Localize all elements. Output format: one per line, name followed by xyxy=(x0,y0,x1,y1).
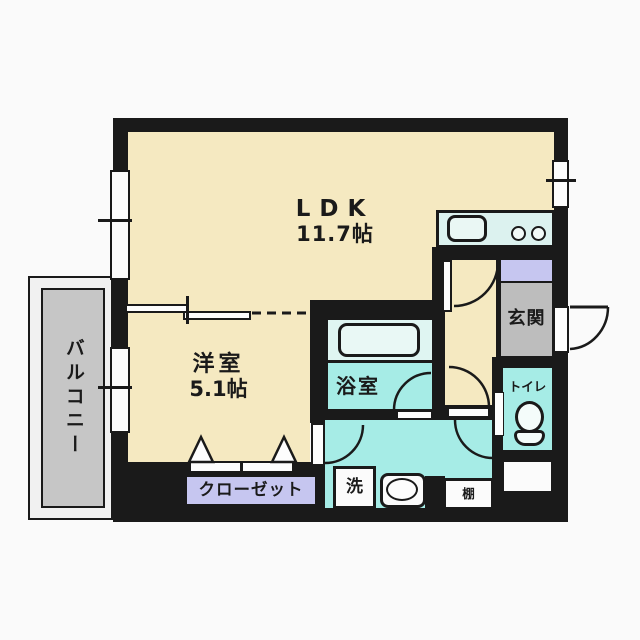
balcony-label: バルコニー xyxy=(62,338,84,458)
vanity-basin xyxy=(380,473,426,508)
toilet-label: トイレ xyxy=(503,380,552,394)
bathtub xyxy=(338,323,420,357)
floor-corridor xyxy=(445,258,497,405)
sliding-door-panel-b xyxy=(183,311,251,320)
ldk-label-block: LDK 11.7帖 xyxy=(245,196,425,247)
wall-top xyxy=(113,118,568,132)
stove-burner-left-icon xyxy=(511,226,526,241)
stove-burner-right-icon xyxy=(531,226,546,241)
closet-label-box: クローゼット xyxy=(185,475,317,506)
ldk-size: 11.7帖 xyxy=(245,222,425,246)
balcony: バルコニー xyxy=(28,276,113,520)
toilet-base-icon xyxy=(514,430,545,446)
wall-western-right-upper xyxy=(310,300,325,423)
closet-label: クローゼット xyxy=(199,481,304,500)
window-tick-western xyxy=(98,386,132,389)
window-ldk-left xyxy=(110,170,130,280)
window-tick-ldk-right xyxy=(546,179,576,182)
room-toilet: トイレ xyxy=(500,365,555,453)
washer-label: 洗 xyxy=(346,478,363,498)
kitchen-sink xyxy=(447,215,487,242)
washer-box: 洗 xyxy=(333,466,376,509)
door-jamb-entry xyxy=(553,306,569,353)
bathroom-label: 浴室 xyxy=(336,375,380,398)
door-jamb-toilet xyxy=(494,392,504,436)
sliding-door-panel-a xyxy=(125,304,189,313)
western-size: 5.1帖 xyxy=(137,377,300,401)
western-label: 洋室 xyxy=(137,352,300,377)
window-western-left xyxy=(110,347,130,433)
sliding-door-tick xyxy=(186,296,189,324)
closet-track-right xyxy=(241,461,294,473)
entrance-label: 玄関 xyxy=(508,309,546,330)
western-label-block: 洋室 5.1帖 xyxy=(137,352,300,401)
floorplan-canvas: バルコニー 浴室 玄関 トイレ クローゼット 洗 棚 xyxy=(0,0,640,640)
basin-bowl-icon xyxy=(386,478,418,501)
closet-track-left xyxy=(189,461,242,473)
balcony-floor: バルコニー xyxy=(41,288,105,508)
door-leaf-corridor-washroom xyxy=(447,407,490,418)
window-tick-ldk-left xyxy=(98,219,132,222)
door-jamb-western-washroom xyxy=(311,423,325,466)
ldk-label: LDK xyxy=(245,196,425,222)
door-leaf-ldk-corridor xyxy=(442,260,452,312)
kitchen-counter xyxy=(436,210,555,248)
utility-box xyxy=(501,459,554,494)
toilet-bowl-icon xyxy=(515,401,544,433)
room-bathroom: 浴室 xyxy=(325,317,435,412)
door-leaf-bathroom xyxy=(396,410,433,420)
entrance-hall: 玄関 xyxy=(499,281,554,358)
shoe-cabinet xyxy=(499,258,554,283)
shelf-divider xyxy=(425,476,445,510)
shelf-box: 棚 xyxy=(443,478,494,510)
entry-door-arc xyxy=(570,307,608,349)
window-ldk-right xyxy=(552,160,569,208)
shelf-label: 棚 xyxy=(462,487,475,501)
